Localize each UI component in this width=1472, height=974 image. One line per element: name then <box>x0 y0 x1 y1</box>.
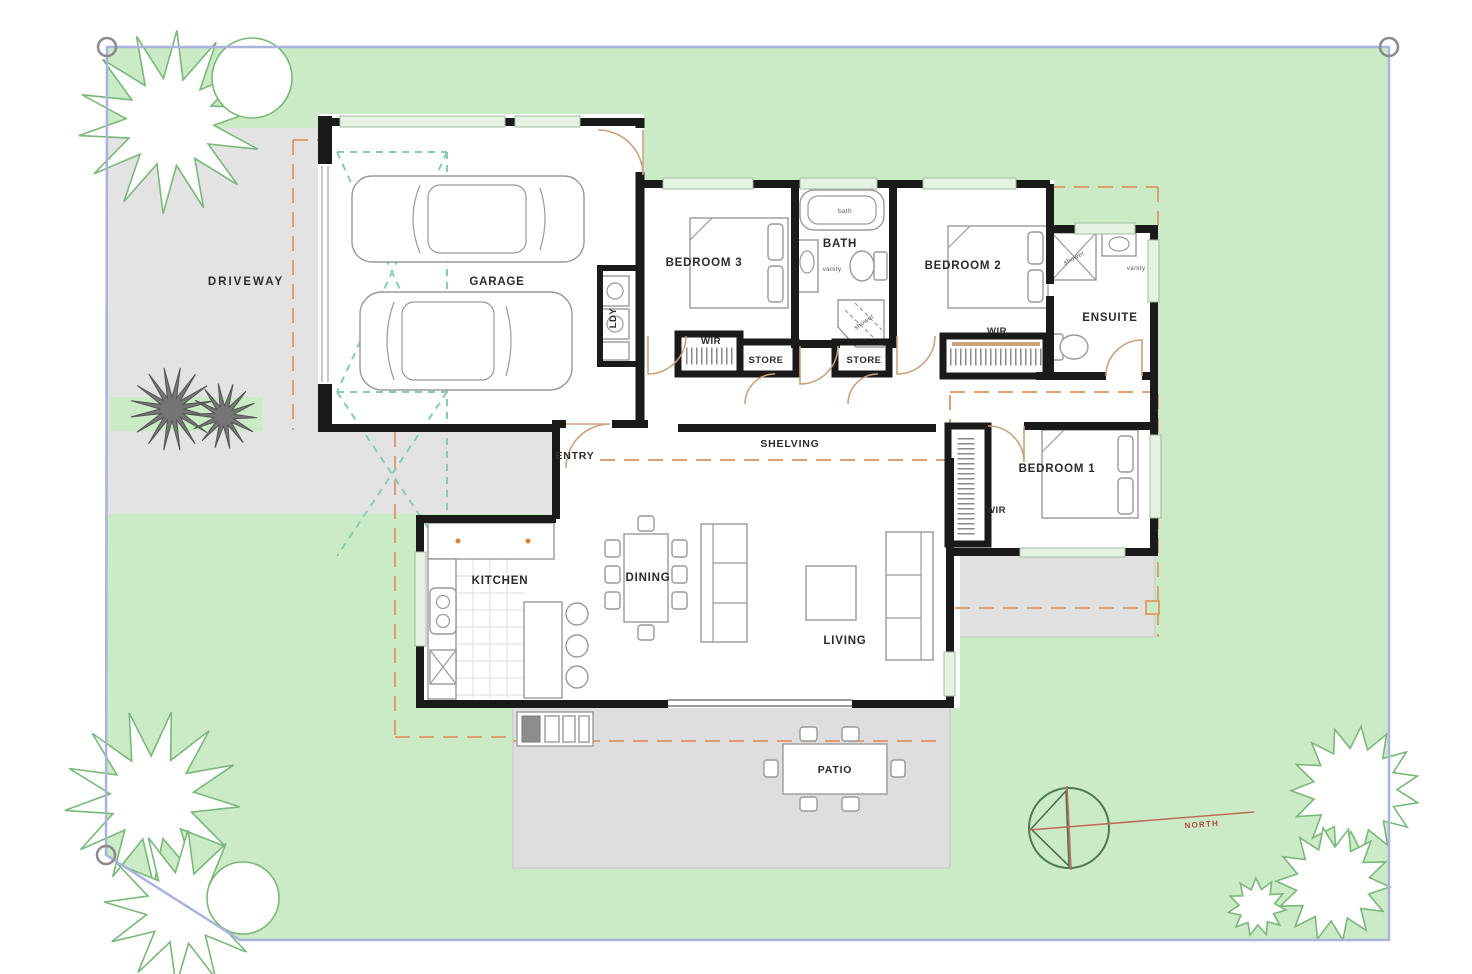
wir-bed3-label: WIR <box>701 336 721 347</box>
bath-fixture-label: bath <box>838 208 852 215</box>
bedroom2-label: BEDROOM 2 <box>925 260 1002 272</box>
car <box>360 292 572 390</box>
setback-marker <box>1146 601 1159 614</box>
vanity-icon <box>797 240 818 292</box>
store2-label: STORE <box>846 355 881 366</box>
living-label: LIVING <box>823 635 866 647</box>
bedroom1-label: BEDROOM 1 <box>1019 463 1096 475</box>
tree-icon <box>207 862 279 934</box>
tree-icon <box>212 38 292 118</box>
wir-bed2-label: WIR <box>987 326 1007 337</box>
vanity-fixture-label: vanity <box>823 266 842 273</box>
ensuite-vanity-label: vanity <box>1127 265 1146 272</box>
garage-label: GARAGE <box>469 276 524 288</box>
wir-bed1-label: WIR <box>986 505 1006 516</box>
bbq-icon <box>517 712 593 746</box>
ensuite-vanity-icon <box>1102 233 1136 256</box>
toilet-icon <box>850 251 887 281</box>
bath-label: BATH <box>823 238 857 250</box>
driveway-label: DRIVEWAY <box>208 276 284 288</box>
floor-plan-page: NORTH DRIVEWAY GARAGE BEDROOM 3 BATH BED… <box>0 0 1472 974</box>
terrace-surface <box>955 555 1155 637</box>
entry-label: ENTRY <box>555 450 594 462</box>
bedroom3-label: BEDROOM 3 <box>666 257 743 269</box>
patio-label: PATIO <box>818 764 853 776</box>
ensuite-label: ENSUITE <box>1082 312 1137 324</box>
store1-label: STORE <box>748 355 783 366</box>
floor-plan-drawing: NORTH DRIVEWAY GARAGE BEDROOM 3 BATH BED… <box>0 0 1472 974</box>
ensuite-toilet-icon <box>1050 334 1088 360</box>
kitchen-label: KITCHEN <box>472 575 529 587</box>
car <box>352 176 584 262</box>
dining-label: DINING <box>625 572 670 584</box>
ldy-label: LDY <box>608 308 619 329</box>
shelving-label: SHELVING <box>760 438 819 450</box>
